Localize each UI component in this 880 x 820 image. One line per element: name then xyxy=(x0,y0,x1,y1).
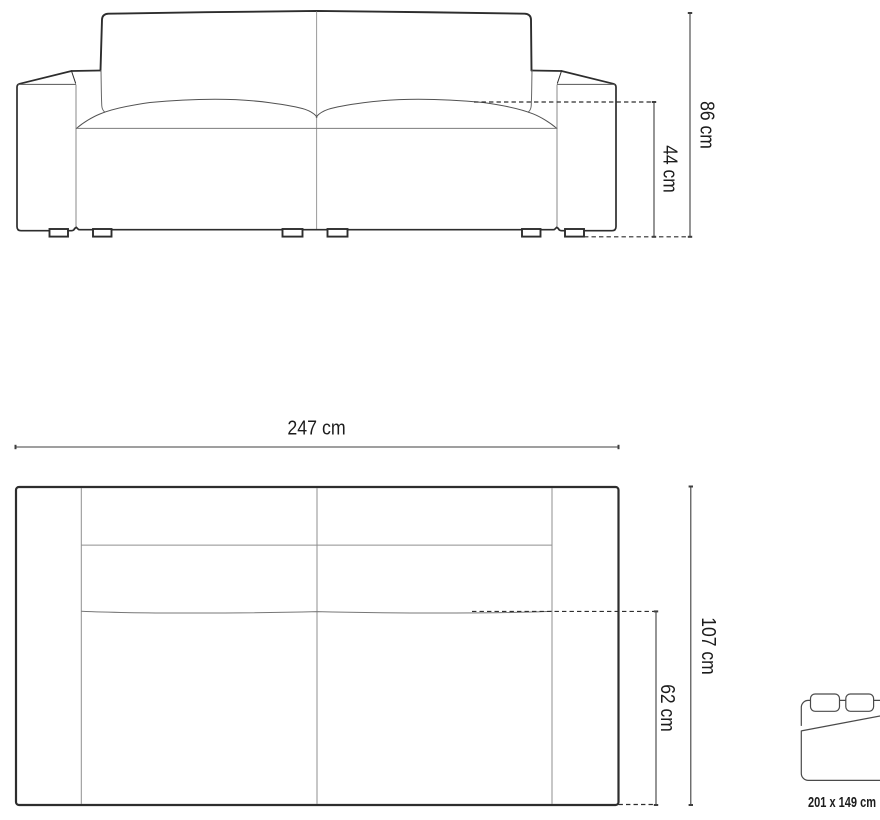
svg-text:107 cm: 107 cm xyxy=(697,617,719,675)
svg-text:44 cm: 44 cm xyxy=(659,145,681,193)
svg-text:86 cm: 86 cm xyxy=(696,101,718,149)
svg-text:62 cm: 62 cm xyxy=(656,684,678,732)
svg-text:247 cm: 247 cm xyxy=(287,418,345,440)
svg-text:201 x 149 cm: 201 x 149 cm xyxy=(808,795,876,811)
